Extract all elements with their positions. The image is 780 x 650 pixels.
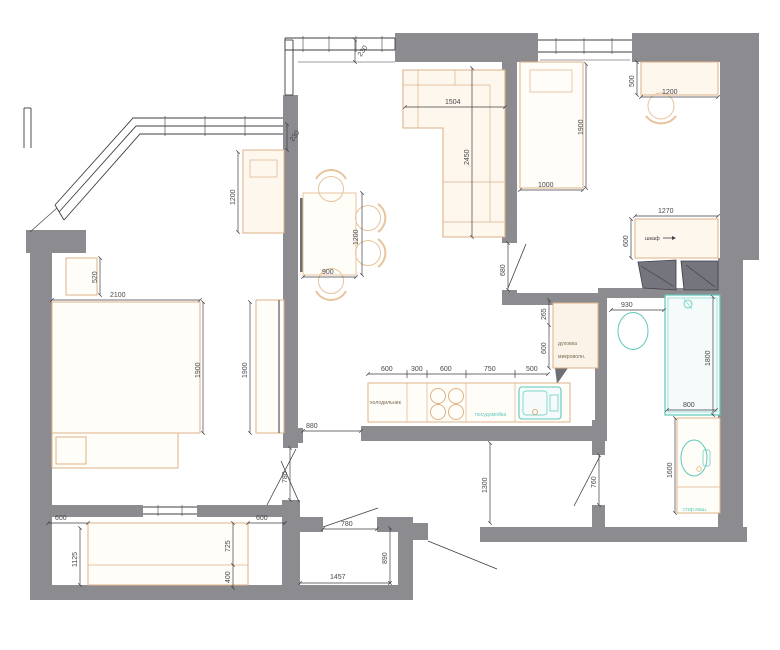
loggia-desk [88,523,248,585]
dim-1900-bed: 1900 [195,362,202,378]
single-bed [520,62,583,188]
dim-b600b: 600 [256,515,268,522]
dim-1000: 1000 [538,182,554,189]
dining-table [303,193,356,275]
wall-bathroom-hall-stub [592,505,605,527]
wall-kitchen-bottom [361,426,607,441]
dim-520: 520 [92,271,99,283]
double-bed [52,302,200,433]
desk-chair-back [646,116,676,123]
chair-bottom-back [316,291,346,300]
dim-2100: 2100 [110,292,126,299]
vent-shafts [638,260,718,290]
dim-1900-wardrobe: 1900 [242,362,249,378]
dim-1200-cabinet: 1200 [230,189,237,205]
wall-corridor-stub-a [300,517,323,532]
dim-b1125: 1125 [72,552,79,567]
wall-right-wide [720,60,759,260]
dim-1200-desk: 1200 [662,89,678,96]
dining-set [303,170,385,300]
sink-drainer [550,395,558,411]
dim-500-desk: 500 [629,75,636,87]
dim-600-oven: 600 [541,342,548,354]
dim-1800: 1800 [705,350,712,366]
window-kitchen-top [285,36,395,95]
wall-left [30,233,52,600]
vent-shaft-left [638,260,676,290]
chair-right-1 [356,206,381,231]
dim-760: 760 [591,476,598,488]
dim-b400: 400 [225,571,232,583]
cabinet-door-wedge [555,368,568,384]
dim-780-door: 780 [282,471,289,483]
wall-entry-step [412,523,428,540]
dim-1600: 1600 [667,462,674,478]
bedroom1-furniture [52,258,284,468]
dim-k600b: 600 [440,366,452,373]
dim-265: 265 [541,308,548,320]
door-swing-entry [428,541,497,569]
label-oven: духовка [558,341,577,347]
dim-k500: 500 [526,366,538,373]
label-fridge: холодильник [370,400,402,406]
floor-plan-canvas: 230 230 1200 1504 2450 1200 900 520 2100… [0,0,780,650]
bath-counter [677,418,720,513]
loggia-furniture [88,523,248,585]
dim-900: 900 [322,269,334,276]
dim-1457: 1457 [330,574,346,581]
floor-plan-drawing: 230 230 1200 1504 2450 1200 900 520 2100… [0,0,780,650]
kitchen-sink-unit [519,387,561,419]
dim-880: 880 [306,423,318,430]
dim-1200-table: 1200 [353,229,360,245]
sofa [403,70,505,237]
dim-1900-bed2: 1900 [578,119,585,135]
door-swing-bedroom2 [508,244,526,288]
pillow [56,437,86,464]
window-loggia [143,505,197,516]
wall-right [718,258,743,542]
label-washer: стир.маш. [683,507,707,513]
kitchen-counter [368,303,598,422]
dim-890: 890 [382,552,389,564]
dim-930: 930 [621,302,633,309]
dim-b600a: 600 [55,515,67,522]
tv-cabinet [243,150,284,233]
dim-230-kitchen: 230 [357,44,369,58]
wardrobe-bedroom1 [256,300,284,433]
wall-bedroom1-bottom-b [197,505,283,517]
chair-right-2-back [378,239,385,267]
sink-bowl [523,391,547,415]
dim-k600a: 600 [381,366,393,373]
dim-1504: 1504 [445,99,461,106]
living-furniture [243,150,284,233]
dim-1270: 1270 [658,208,674,215]
wall-living-bedroom-divider [283,95,298,448]
dim-600-closet: 600 [623,235,630,247]
dim-2450: 2450 [464,149,471,165]
label-wardrobe: шкаф [645,236,660,242]
desk [641,62,718,95]
dim-k750: 750 [484,366,496,373]
label-microwave: микроволн. [558,354,585,360]
bedroom2-furniture [520,62,718,258]
dim-800: 800 [683,402,695,409]
dim-780-corr: 780 [341,521,353,528]
bathroom-fixtures [618,295,720,513]
chair-right-1-back [378,204,385,232]
window-bedroom2-top [538,38,632,60]
chair-top-back [316,170,346,179]
wall-loggia-bottom [30,585,412,600]
wall-corridor-right [398,517,413,600]
wall-top-right-block [632,33,759,62]
wall-corridor-stub-b [377,517,398,532]
label-dishwasher: посудомойка [475,411,506,418]
toilet [618,313,648,350]
dim-k300: 300 [411,366,423,373]
dim-1300: 1300 [482,477,489,493]
dim-680: 680 [500,264,507,276]
dim-b725: 725 [225,540,232,552]
wall-hallway-bottom [480,527,747,542]
